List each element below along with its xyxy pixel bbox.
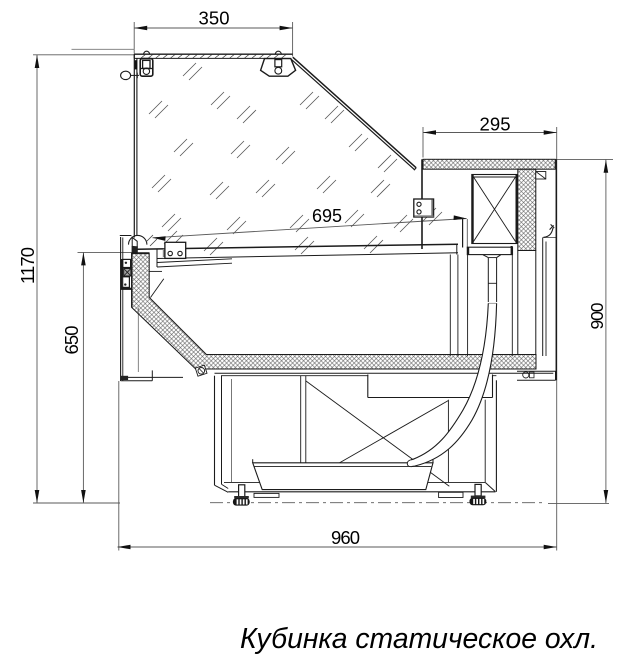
- svg-text:295: 295: [480, 114, 511, 135]
- svg-text:900: 900: [587, 302, 607, 329]
- svg-text:350: 350: [199, 8, 230, 29]
- svg-text:695: 695: [312, 206, 342, 226]
- svg-text:1170: 1170: [17, 247, 38, 284]
- svg-text:650: 650: [61, 326, 82, 355]
- svg-text:960: 960: [331, 527, 360, 548]
- svg-text:Кубинка статическое охл.: Кубинка статическое охл.: [240, 623, 598, 655]
